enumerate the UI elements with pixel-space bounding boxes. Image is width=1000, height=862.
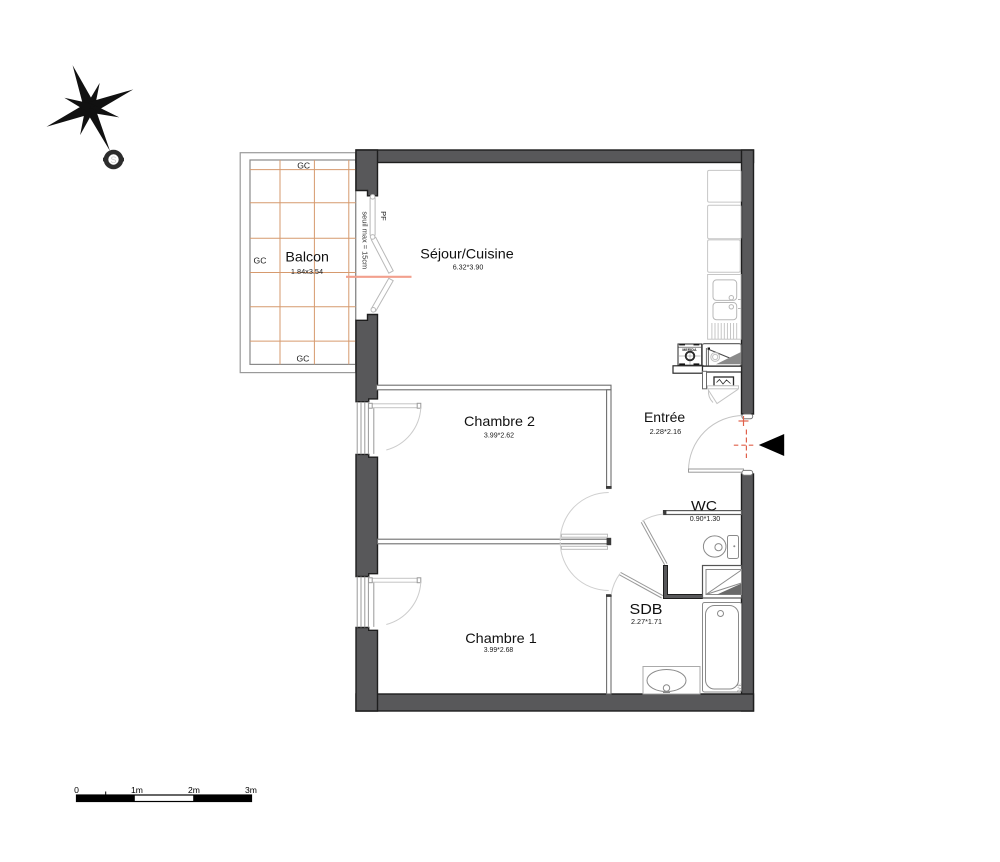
svg-text:1.84x3.54: 1.84x3.54 [291, 267, 323, 276]
svg-text:6.32*3.90: 6.32*3.90 [453, 263, 484, 272]
svg-text:Chambre 1: Chambre 1 [465, 630, 537, 646]
svg-text:3.99*2.68: 3.99*2.68 [484, 645, 514, 654]
svg-text:WC: WC [691, 498, 717, 514]
svg-text:3m: 3m [245, 785, 257, 795]
svg-text:Séjour/Cuisine: Séjour/Cuisine [420, 245, 514, 261]
svg-text:GC: GC [297, 160, 310, 170]
svg-text:GC: GC [254, 256, 267, 266]
svg-text:370: 370 [736, 683, 742, 692]
svg-text:S: S [110, 155, 116, 165]
svg-text:seuil max = 15cm: seuil max = 15cm [361, 211, 370, 269]
svg-text:0.90*1.30: 0.90*1.30 [690, 514, 721, 523]
svg-text:Entrée: Entrée [644, 409, 685, 425]
svg-text:2.28*2.16: 2.28*2.16 [650, 427, 682, 436]
svg-text:GC: GC [296, 353, 309, 363]
svg-text:2m: 2m [188, 785, 200, 795]
svg-text:Balcon: Balcon [285, 249, 329, 265]
svg-text:1m: 1m [131, 785, 143, 795]
svg-text:2.27*1.71: 2.27*1.71 [631, 617, 662, 626]
svg-text:PF: PF [379, 211, 388, 221]
svg-text:SDB: SDB [630, 602, 663, 618]
svg-text:0: 0 [74, 785, 79, 795]
svg-text:Chambre 2: Chambre 2 [464, 413, 535, 429]
svg-text:3.99*2.62: 3.99*2.62 [484, 430, 514, 439]
